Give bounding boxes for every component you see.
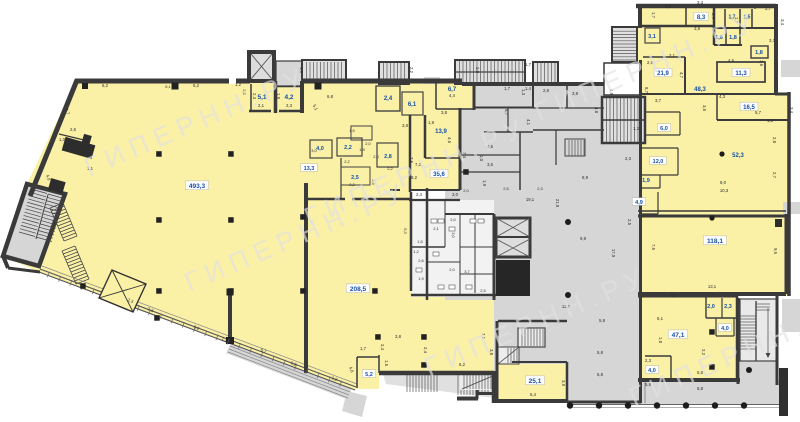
- svg-text:2,1: 2,1: [433, 226, 439, 231]
- svg-text:5,8: 5,8: [597, 372, 604, 377]
- svg-text:6,2: 6,2: [102, 83, 109, 88]
- svg-text:4,7: 4,7: [679, 72, 684, 79]
- svg-text:19,1: 19,1: [526, 197, 535, 202]
- svg-text:6,2: 6,2: [193, 83, 200, 88]
- svg-text:7,5: 7,5: [651, 244, 656, 251]
- svg-text:3,7: 3,7: [464, 269, 470, 274]
- svg-text:48,3: 48,3: [694, 87, 706, 93]
- svg-text:2,3: 2,3: [625, 156, 632, 161]
- svg-text:2,6: 2,6: [70, 127, 77, 132]
- svg-text:2,5: 2,5: [503, 186, 509, 191]
- svg-text:11,3: 11,3: [735, 71, 747, 77]
- svg-text:1,9: 1,9: [428, 120, 435, 125]
- svg-text:5,3: 5,3: [403, 228, 408, 234]
- svg-text:2,2: 2,2: [409, 67, 414, 74]
- svg-text:47,1: 47,1: [672, 332, 685, 339]
- svg-text:5,8: 5,8: [599, 318, 606, 323]
- svg-text:8,9: 8,9: [582, 175, 589, 180]
- svg-text:3,0: 3,0: [451, 232, 456, 238]
- svg-text:208,5: 208,5: [350, 286, 367, 293]
- svg-text:5,2: 5,2: [365, 372, 373, 378]
- svg-text:4,0: 4,0: [316, 146, 324, 152]
- svg-text:1,5: 1,5: [417, 239, 423, 244]
- svg-text:3,5: 3,5: [487, 162, 494, 167]
- svg-text:4,0: 4,0: [721, 326, 729, 332]
- svg-text:2,3: 2,3: [724, 304, 732, 310]
- svg-text:3,4: 3,4: [789, 107, 794, 114]
- svg-text:9,5: 9,5: [773, 248, 778, 255]
- svg-text:6,1: 6,1: [165, 84, 171, 89]
- svg-text:3,8: 3,8: [665, 4, 672, 9]
- svg-text:1,9: 1,9: [642, 178, 650, 184]
- svg-text:2,4: 2,4: [384, 96, 393, 102]
- svg-text:1,9: 1,9: [482, 180, 487, 187]
- svg-text:3,7: 3,7: [655, 98, 662, 103]
- svg-text:6,1: 6,1: [408, 102, 417, 108]
- svg-text:1,3: 1,3: [521, 89, 526, 96]
- svg-text:2,2: 2,2: [344, 159, 350, 164]
- svg-text:1,3: 1,3: [633, 126, 640, 131]
- svg-text:6,8: 6,8: [327, 94, 334, 99]
- svg-text:8,7: 8,7: [644, 87, 649, 94]
- svg-text:4,3: 4,3: [719, 94, 726, 99]
- svg-text:13,3: 13,3: [304, 166, 315, 172]
- svg-text:3,8: 3,8: [402, 123, 409, 128]
- svg-text:1,5: 1,5: [349, 128, 355, 133]
- svg-text:3,8: 3,8: [441, 110, 448, 115]
- svg-text:5,8: 5,8: [597, 350, 604, 355]
- svg-text:3,4: 3,4: [780, 19, 785, 26]
- svg-text:3,0: 3,0: [452, 192, 459, 197]
- svg-text:2,2: 2,2: [344, 145, 352, 151]
- svg-text:2,0: 2,0: [365, 141, 371, 146]
- svg-text:1,5: 1,5: [384, 360, 389, 367]
- svg-text:2,0: 2,0: [373, 154, 379, 159]
- svg-text:3,9: 3,9: [561, 380, 566, 387]
- svg-text:1,7: 1,7: [360, 346, 367, 351]
- svg-text:6,0: 6,0: [660, 126, 668, 132]
- svg-text:52,3: 52,3: [732, 153, 744, 159]
- svg-text:8,0: 8,0: [720, 180, 727, 185]
- svg-text:6,4: 6,4: [530, 392, 537, 397]
- svg-text:1,2: 1,2: [413, 249, 419, 254]
- svg-text:1,3: 1,3: [767, 118, 774, 123]
- svg-text:4,4: 4,4: [449, 93, 456, 98]
- svg-text:12,0: 12,0: [653, 159, 664, 165]
- svg-text:5,8: 5,8: [697, 386, 704, 391]
- svg-text:4,8: 4,8: [594, 107, 599, 114]
- svg-text:2,3: 2,3: [537, 186, 543, 191]
- svg-text:2,4: 2,4: [711, 13, 716, 20]
- svg-text:1,8: 1,8: [755, 50, 763, 56]
- svg-text:1,9: 1,9: [359, 147, 365, 152]
- svg-text:3,4: 3,4: [697, 0, 704, 5]
- svg-text:2,3: 2,3: [645, 358, 652, 363]
- svg-text:2,0: 2,0: [707, 304, 715, 310]
- svg-text:16,5: 16,5: [743, 105, 755, 111]
- svg-text:118,1: 118,1: [707, 238, 723, 245]
- svg-text:2,8: 2,8: [772, 137, 777, 144]
- svg-text:17,9: 17,9: [611, 249, 616, 258]
- svg-text:2,6: 2,6: [418, 258, 424, 263]
- svg-text:6,1: 6,1: [657, 316, 664, 321]
- svg-text:1,9: 1,9: [418, 276, 424, 281]
- svg-text:1,8: 1,8: [658, 337, 663, 344]
- svg-text:4,6: 4,6: [728, 58, 735, 63]
- svg-text:2,0: 2,0: [449, 267, 455, 272]
- svg-text:9,8: 9,8: [580, 236, 587, 241]
- svg-text:6,7: 6,7: [448, 87, 457, 93]
- svg-text:25,1: 25,1: [529, 378, 542, 385]
- svg-text:2,7: 2,7: [765, 6, 772, 11]
- svg-text:3,7: 3,7: [769, 38, 776, 43]
- svg-text:3,0: 3,0: [311, 148, 317, 153]
- svg-text:5,7: 5,7: [504, 109, 509, 116]
- svg-text:2,4: 2,4: [416, 192, 423, 197]
- svg-text:1,0: 1,0: [59, 137, 66, 142]
- svg-text:2,5: 2,5: [627, 219, 632, 226]
- svg-text:2,5: 2,5: [480, 288, 486, 293]
- svg-text:493,3: 493,3: [189, 183, 206, 190]
- svg-text:2,3: 2,3: [286, 103, 293, 108]
- svg-text:13,1: 13,1: [708, 284, 717, 289]
- svg-text:3,5: 3,5: [702, 105, 707, 112]
- svg-text:1,7: 1,7: [504, 86, 511, 91]
- svg-text:5,7: 5,7: [671, 293, 678, 298]
- svg-text:2,0: 2,0: [463, 188, 469, 193]
- svg-text:4,9: 4,9: [635, 200, 643, 206]
- svg-text:1,6: 1,6: [759, 60, 764, 67]
- svg-text:8,3: 8,3: [697, 15, 706, 21]
- svg-text:21,9: 21,9: [555, 199, 560, 208]
- svg-text:2,0: 2,0: [475, 67, 480, 74]
- svg-text:10,3: 10,3: [720, 188, 729, 193]
- svg-text:2,8: 2,8: [384, 154, 392, 160]
- svg-text:3,8: 3,8: [395, 334, 402, 339]
- svg-text:2,7: 2,7: [772, 172, 777, 179]
- svg-text:1,7: 1,7: [651, 12, 656, 19]
- svg-text:2,0: 2,0: [450, 217, 456, 222]
- svg-text:1,7: 1,7: [525, 62, 532, 67]
- svg-text:13,9: 13,9: [435, 129, 447, 135]
- svg-text:3,1: 3,1: [648, 34, 656, 40]
- svg-text:5,7: 5,7: [755, 110, 762, 115]
- svg-text:2,4: 2,4: [380, 344, 385, 351]
